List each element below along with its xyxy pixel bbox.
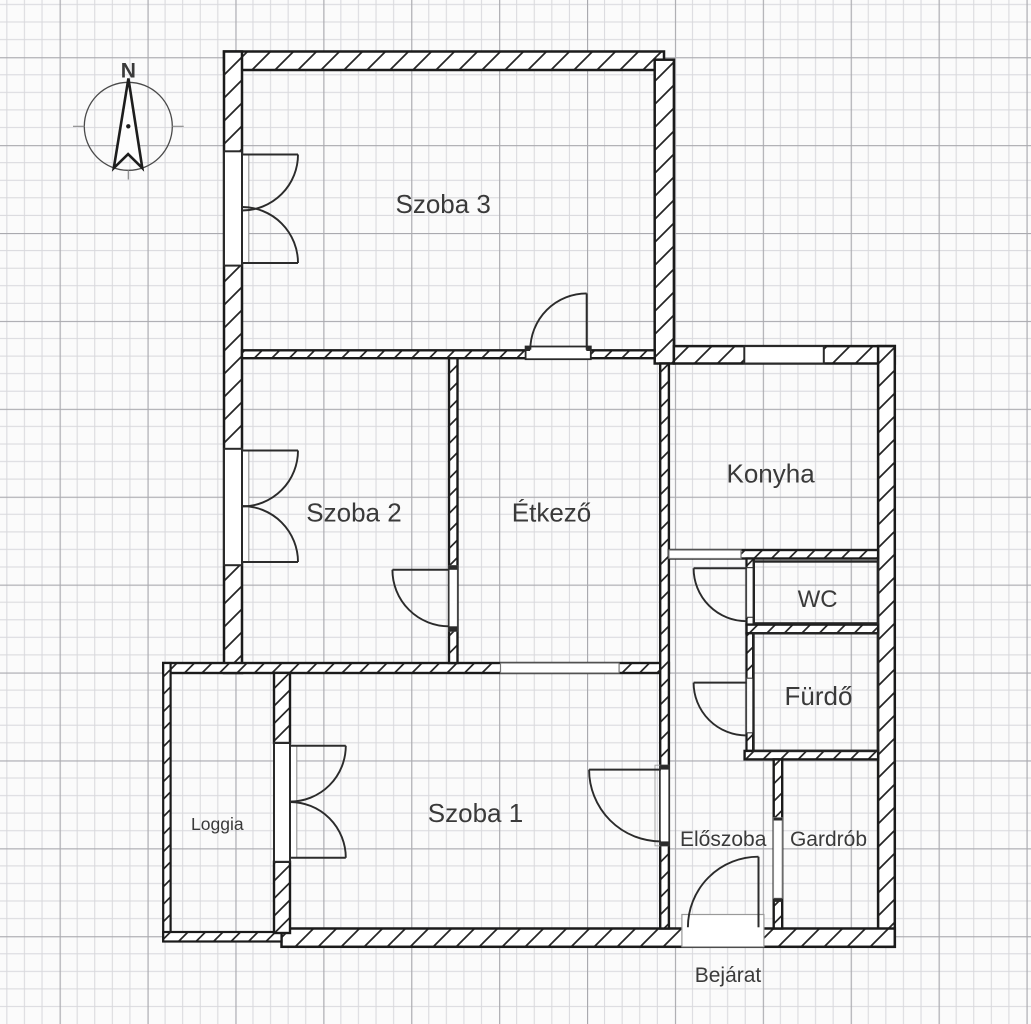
svg-text:Előszoba: Előszoba	[680, 828, 767, 851]
svg-text:N: N	[121, 60, 136, 83]
svg-text:Étkező: Étkező	[512, 498, 592, 528]
svg-text:Szoba 1: Szoba 1	[428, 798, 523, 828]
svg-text:Szoba 2: Szoba 2	[306, 498, 401, 528]
svg-text:Gardrób: Gardrób	[790, 828, 867, 851]
svg-text:Bejárat: Bejárat	[695, 964, 762, 987]
svg-text:Fürdő: Fürdő	[785, 681, 853, 711]
svg-text:Loggia: Loggia	[191, 814, 244, 834]
svg-text:Szoba 3: Szoba 3	[395, 189, 490, 219]
svg-text:Konyha: Konyha	[727, 459, 816, 489]
svg-text:WC: WC	[798, 586, 838, 613]
